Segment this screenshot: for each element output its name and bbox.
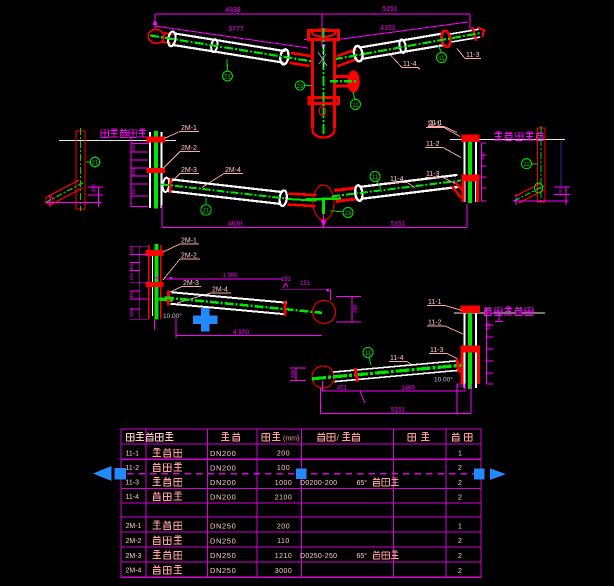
svg-text:200: 200 — [277, 451, 290, 458]
svg-text:11: 11 — [365, 351, 372, 357]
svg-text:4838: 4838 — [228, 221, 243, 228]
svg-text:100: 100 — [131, 144, 136, 152]
svg-text:400: 400 — [92, 184, 98, 193]
svg-text:11-3: 11-3 — [466, 52, 480, 59]
svg-text:11-4: 11-4 — [390, 176, 404, 183]
svg-text:1: 1 — [458, 451, 462, 458]
svg-text:5151: 5151 — [391, 221, 406, 228]
svg-text:11-4: 11-4 — [390, 355, 404, 362]
svg-text:1 000: 1 000 — [222, 273, 238, 279]
svg-text:2: 2 — [458, 494, 462, 501]
svg-text:11-1: 11-1 — [427, 121, 441, 128]
svg-text:11-3: 11-3 — [126, 480, 140, 487]
svg-text:200: 200 — [277, 523, 290, 530]
svg-text:10.00°: 10.00° — [434, 376, 453, 384]
svg-text:2: 2 — [458, 568, 462, 575]
svg-text:2M-1: 2M-1 — [181, 238, 197, 245]
svg-text:400: 400 — [486, 322, 491, 330]
svg-text:151: 151 — [300, 281, 311, 287]
svg-text:3777: 3777 — [228, 26, 244, 33]
svg-text:2M-3: 2M-3 — [183, 280, 199, 287]
svg-text:400: 400 — [129, 262, 134, 270]
svg-text:1: 1 — [458, 523, 462, 530]
svg-text:2M-2: 2M-2 — [126, 538, 142, 545]
svg-text:21: 21 — [224, 75, 231, 81]
svg-text:11: 11 — [438, 56, 445, 62]
svg-text:11-4: 11-4 — [126, 494, 140, 501]
svg-text:4 500: 4 500 — [233, 329, 250, 336]
svg-text:2M-2: 2M-2 — [181, 145, 197, 152]
svg-text:DN250: DN250 — [210, 566, 236, 575]
svg-text:300: 300 — [291, 370, 297, 379]
svg-text:300: 300 — [353, 305, 359, 314]
svg-text:4151: 4151 — [380, 25, 396, 32]
svg-text:100: 100 — [277, 465, 290, 472]
svg-text:400: 400 — [558, 188, 563, 196]
svg-text:2: 2 — [458, 538, 462, 545]
svg-text:11: 11 — [372, 175, 379, 181]
svg-text:DN250: DN250 — [210, 522, 236, 531]
svg-text:DN200: DN200 — [210, 463, 236, 472]
svg-text:11: 11 — [352, 103, 359, 109]
svg-text:2M-1: 2M-1 — [126, 523, 142, 530]
svg-text:21: 21 — [92, 161, 99, 167]
svg-text:DN200: DN200 — [210, 493, 236, 502]
svg-text:D0250-250: D0250-250 — [300, 553, 337, 560]
svg-text:11-4: 11-4 — [403, 61, 417, 68]
svg-text:400: 400 — [129, 309, 134, 317]
svg-text:DN250: DN250 — [210, 536, 236, 545]
svg-text:2M-4: 2M-4 — [126, 568, 142, 575]
svg-text:2: 2 — [458, 465, 462, 472]
svg-text:11-3: 11-3 — [426, 171, 440, 178]
svg-text:10.00°: 10.00° — [163, 312, 182, 320]
svg-text:DN250: DN250 — [210, 551, 236, 560]
svg-text:DN200: DN200 — [210, 478, 236, 487]
svg-text:3000: 3000 — [275, 568, 293, 575]
svg-text:2: 2 — [458, 480, 462, 487]
svg-text:23: 23 — [345, 211, 352, 217]
svg-text:65°: 65° — [357, 552, 368, 560]
svg-text:(mm): (mm) — [283, 435, 299, 442]
svg-text:5151: 5151 — [391, 407, 406, 414]
svg-text:400: 400 — [131, 168, 136, 176]
svg-text:400: 400 — [131, 187, 136, 195]
svg-text:65°: 65° — [357, 479, 368, 487]
svg-text:5151: 5151 — [382, 6, 398, 13]
svg-text:2100: 2100 — [275, 494, 293, 501]
svg-text:2M-4: 2M-4 — [212, 287, 228, 294]
svg-text:2: 2 — [458, 553, 462, 560]
svg-text:4838: 4838 — [225, 7, 241, 14]
svg-text:1210: 1210 — [275, 553, 293, 560]
svg-text:2M-3: 2M-3 — [126, 553, 142, 560]
svg-text:2M-3: 2M-3 — [181, 167, 197, 174]
svg-text:2M-1: 2M-1 — [181, 125, 197, 132]
svg-text:110: 110 — [277, 538, 290, 545]
svg-text:23: 23 — [297, 84, 304, 90]
svg-text:451: 451 — [337, 386, 348, 392]
svg-text:151: 151 — [281, 277, 292, 283]
svg-text:150: 150 — [129, 273, 134, 281]
svg-text:D0200-200: D0200-200 — [300, 480, 337, 487]
svg-text:11-1: 11-1 — [126, 451, 140, 458]
svg-text:100: 100 — [129, 246, 134, 254]
svg-text:11: 11 — [523, 162, 530, 168]
svg-text:400: 400 — [129, 290, 134, 298]
svg-text:1000: 1000 — [275, 480, 293, 487]
svg-text:11-2: 11-2 — [428, 320, 442, 327]
svg-text:DN200: DN200 — [210, 449, 236, 458]
svg-text:11-2: 11-2 — [426, 141, 440, 148]
svg-text:11-3: 11-3 — [430, 347, 444, 354]
svg-text:21: 21 — [203, 209, 210, 215]
svg-text:11-1: 11-1 — [428, 299, 442, 306]
svg-text:2M-2: 2M-2 — [181, 253, 197, 260]
svg-text:1466: 1466 — [401, 386, 415, 392]
svg-text:11-2: 11-2 — [126, 465, 140, 472]
svg-text:400: 400 — [480, 152, 485, 160]
svg-text:2M-4: 2M-4 — [225, 167, 241, 174]
